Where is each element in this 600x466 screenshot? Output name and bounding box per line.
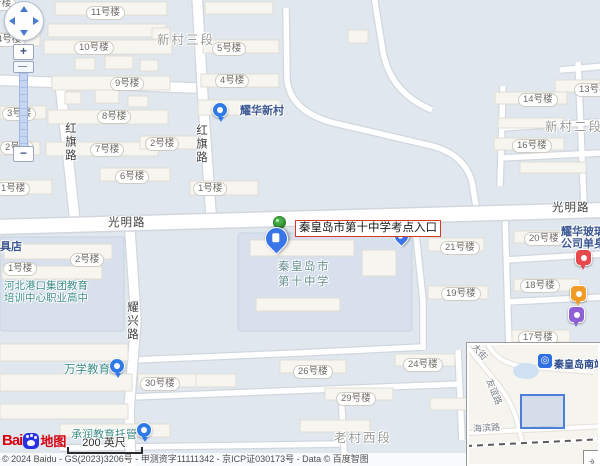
expand-arrow-icon: » — [586, 456, 598, 466]
road-label-hongqilu: 红旗路 — [193, 124, 209, 165]
building-label: 1号楼 — [3, 262, 37, 276]
poi-label-wanxue-education: 万学教育 — [64, 364, 110, 376]
pan-up-icon[interactable] — [20, 6, 28, 12]
pond — [513, 363, 539, 379]
building-label: 6号楼 — [115, 170, 149, 184]
train-station-icon: ◎ — [538, 354, 552, 368]
road-label-guangminglu: 光明路 — [108, 214, 146, 230]
building-label: 18号楼 — [520, 279, 560, 293]
building-label: 19号楼 — [441, 287, 481, 301]
yaohua-xincun-poi-icon[interactable] — [212, 102, 228, 118]
building-label: 13号楼 — [574, 83, 600, 97]
poi-label-yaohua-glass: 耀华玻璃 公司单身 — [561, 226, 600, 250]
pan-compass-control[interactable] — [4, 1, 44, 41]
zoom-out-button[interactable]: − — [13, 146, 34, 162]
building-label: 2号楼 — [145, 137, 179, 151]
building-label: 11号楼 — [86, 6, 125, 20]
building-label: 29号楼 — [336, 392, 376, 406]
road-label-yaoxinglu: 耀兴路 — [124, 301, 140, 342]
inset-expand-button[interactable]: » — [583, 450, 600, 466]
baidu-wordmark: Bai — [2, 432, 22, 449]
building-label: 16号楼 — [512, 139, 552, 153]
wanxue-poi-icon[interactable] — [109, 358, 125, 374]
inset-viewport-rectangle[interactable] — [520, 394, 565, 429]
poi-label-yaohua-xincun: 耀华新村 — [240, 105, 284, 117]
station-label: 秦皇岛南站 — [554, 356, 600, 371]
area-label: 新村三段 — [157, 29, 215, 48]
building-label: 24号楼 — [403, 358, 443, 372]
overview-inset-map[interactable]: ◎ 秦皇岛南站 友谊路海滨路大街 » — [467, 343, 600, 466]
building-label: 26号楼 — [293, 365, 333, 379]
building-label: 21号楼 — [440, 241, 480, 255]
zoom-slider-track[interactable] — [19, 72, 28, 148]
building-label: 1号楼 — [0, 182, 30, 196]
building-label: 30号楼 — [140, 377, 180, 391]
poi-label-hebei-port-school: 河北港口集团教育 培训中心职业高中 — [4, 280, 88, 304]
inset-road-label: 海滨路 — [473, 420, 501, 435]
building-label: 20号楼 — [524, 232, 564, 246]
baidu-maps-logo: Bai 地图 — [2, 431, 66, 450]
zoom-slider-handle[interactable] — [13, 61, 34, 73]
building-label: 14号楼 — [518, 93, 558, 107]
railway-line — [469, 439, 600, 446]
building-label: 7号楼 — [90, 143, 124, 157]
road-label-guangminglu: 光明路 — [552, 199, 590, 215]
poi-label-furniture-store: 家具店 — [0, 241, 22, 253]
poi-label-no10-middle-school: 秦皇岛市 第十中学 — [278, 260, 330, 290]
pan-left-icon[interactable] — [9, 17, 15, 25]
exam-site-entrance-callout: 秦皇岛市第十中学考点入口 — [295, 220, 441, 237]
building-label: 8号楼 — [97, 110, 131, 124]
road-label-hongqilu: 红旗路 — [62, 122, 78, 163]
zoom-in-button[interactable]: + — [13, 44, 34, 60]
building-label: 10号楼 — [74, 41, 114, 55]
pan-down-icon[interactable] — [20, 30, 28, 36]
building-label: 1号楼 — [193, 182, 227, 196]
map-canvas[interactable]: 8号楼11号楼4号楼10号楼5号楼9号楼4号楼8号楼3号楼7号楼2号楼2号楼6号… — [0, 0, 600, 466]
building-label: 2号楼 — [70, 253, 104, 267]
area-label: 新村二段 — [545, 116, 600, 135]
baidu-maps-suffix: 地图 — [40, 431, 66, 450]
pan-right-icon[interactable] — [33, 17, 39, 25]
building-label: 4号楼 — [215, 74, 249, 88]
building-label: 5号楼 — [212, 42, 246, 56]
scale-bar — [67, 447, 143, 454]
baidu-paw-icon — [23, 433, 39, 449]
area-label: 老村西段 — [334, 427, 392, 446]
shop-poi-pin[interactable] — [575, 249, 592, 266]
restaurant-poi-pin[interactable] — [570, 285, 587, 302]
building-label: 9号楼 — [110, 77, 144, 91]
entertainment-poi-pin[interactable] — [568, 306, 585, 323]
copyright-bar: © 2024 Baidu - GS(2023)3206号 - 甲测资字11111… — [0, 453, 470, 466]
